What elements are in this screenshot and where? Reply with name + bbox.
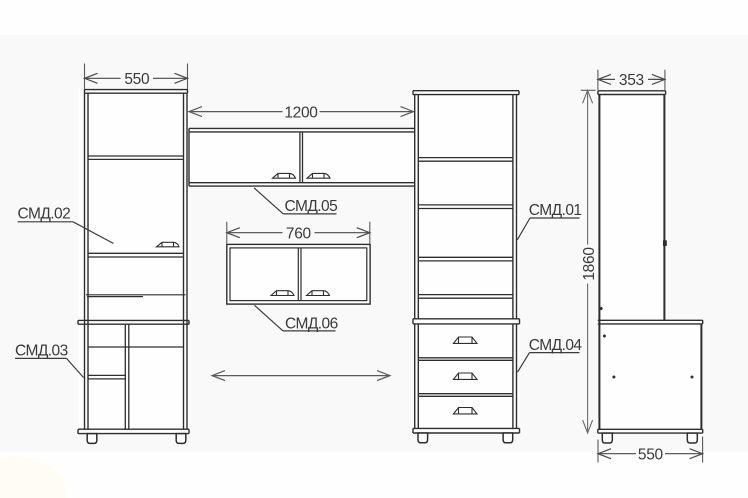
svg-text:1200: 1200	[284, 104, 318, 121]
svg-text:СМД.06: СМД.06	[285, 315, 338, 332]
svg-text:550: 550	[124, 71, 150, 88]
svg-text:760: 760	[286, 225, 312, 242]
svg-text:СМД.03: СМД.03	[15, 343, 68, 360]
svg-text:550: 550	[638, 446, 664, 463]
svg-text:1860: 1860	[581, 247, 598, 281]
svg-text:353: 353	[619, 72, 644, 89]
svg-text:СМД.05: СМД.05	[285, 198, 338, 215]
svg-text:СМД.01: СМД.01	[529, 202, 582, 219]
svg-text:СМД.04: СМД.04	[529, 337, 583, 354]
svg-text:СМД.02: СМД.02	[18, 206, 71, 223]
